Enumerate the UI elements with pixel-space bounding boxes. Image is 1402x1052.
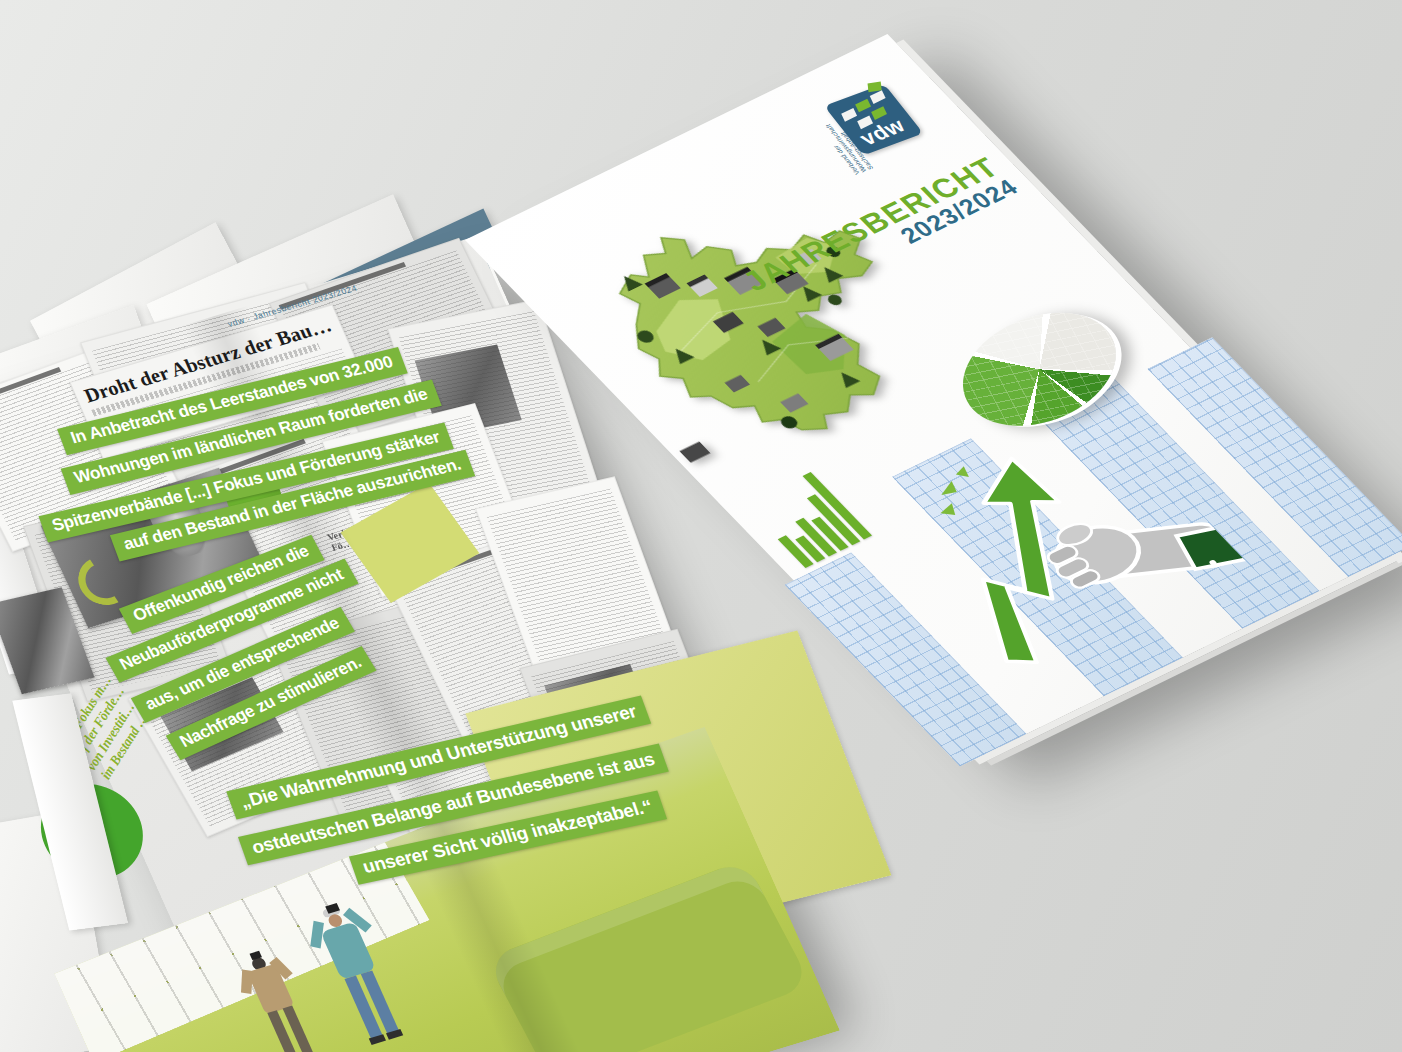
vdw-logo: Verband der Wohnungswirtschaft Sachsen-A… <box>808 78 937 172</box>
green-sofa <box>486 859 812 1052</box>
logo-window-icon <box>855 99 871 113</box>
logo-window-icon <box>870 90 886 104</box>
logo-window-icon <box>841 108 857 122</box>
photo-backdrop: Droht der Absturz der Bau… Verbä… Fö… vd… <box>0 0 1402 1052</box>
